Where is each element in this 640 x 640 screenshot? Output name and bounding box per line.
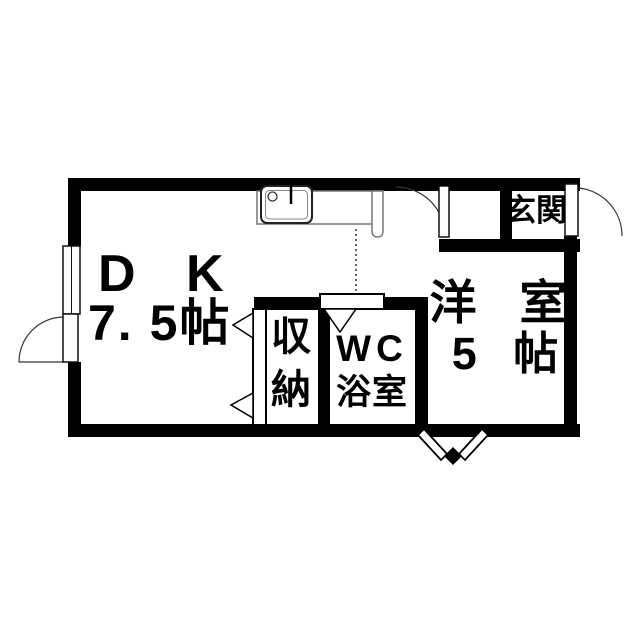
entry-swing-door-icon — [565, 184, 622, 236]
kitchen-sink-icon — [261, 179, 312, 223]
western-room-label: 洋 室 — [428, 278, 568, 327]
left-swing-door-icon — [19, 314, 78, 362]
dk-room-size: 7. 5帖 — [88, 297, 231, 350]
hall-swing-door-icon — [396, 186, 449, 237]
floorplan-canvas: D K 7. 5帖 収納 WC 浴室 洋 室 5 帖 玄関 — [0, 0, 640, 640]
closet-double-door-icon — [231, 309, 266, 425]
entrance-label: 玄関 — [504, 195, 568, 228]
closet-label: 収納 — [271, 311, 315, 417]
bath-label: 浴室 — [328, 375, 416, 412]
wc-label: WC — [330, 330, 414, 369]
dk-room-label: D K — [98, 247, 242, 302]
window-icon — [63, 246, 80, 314]
western-room-size: 5 帖 — [435, 330, 575, 377]
